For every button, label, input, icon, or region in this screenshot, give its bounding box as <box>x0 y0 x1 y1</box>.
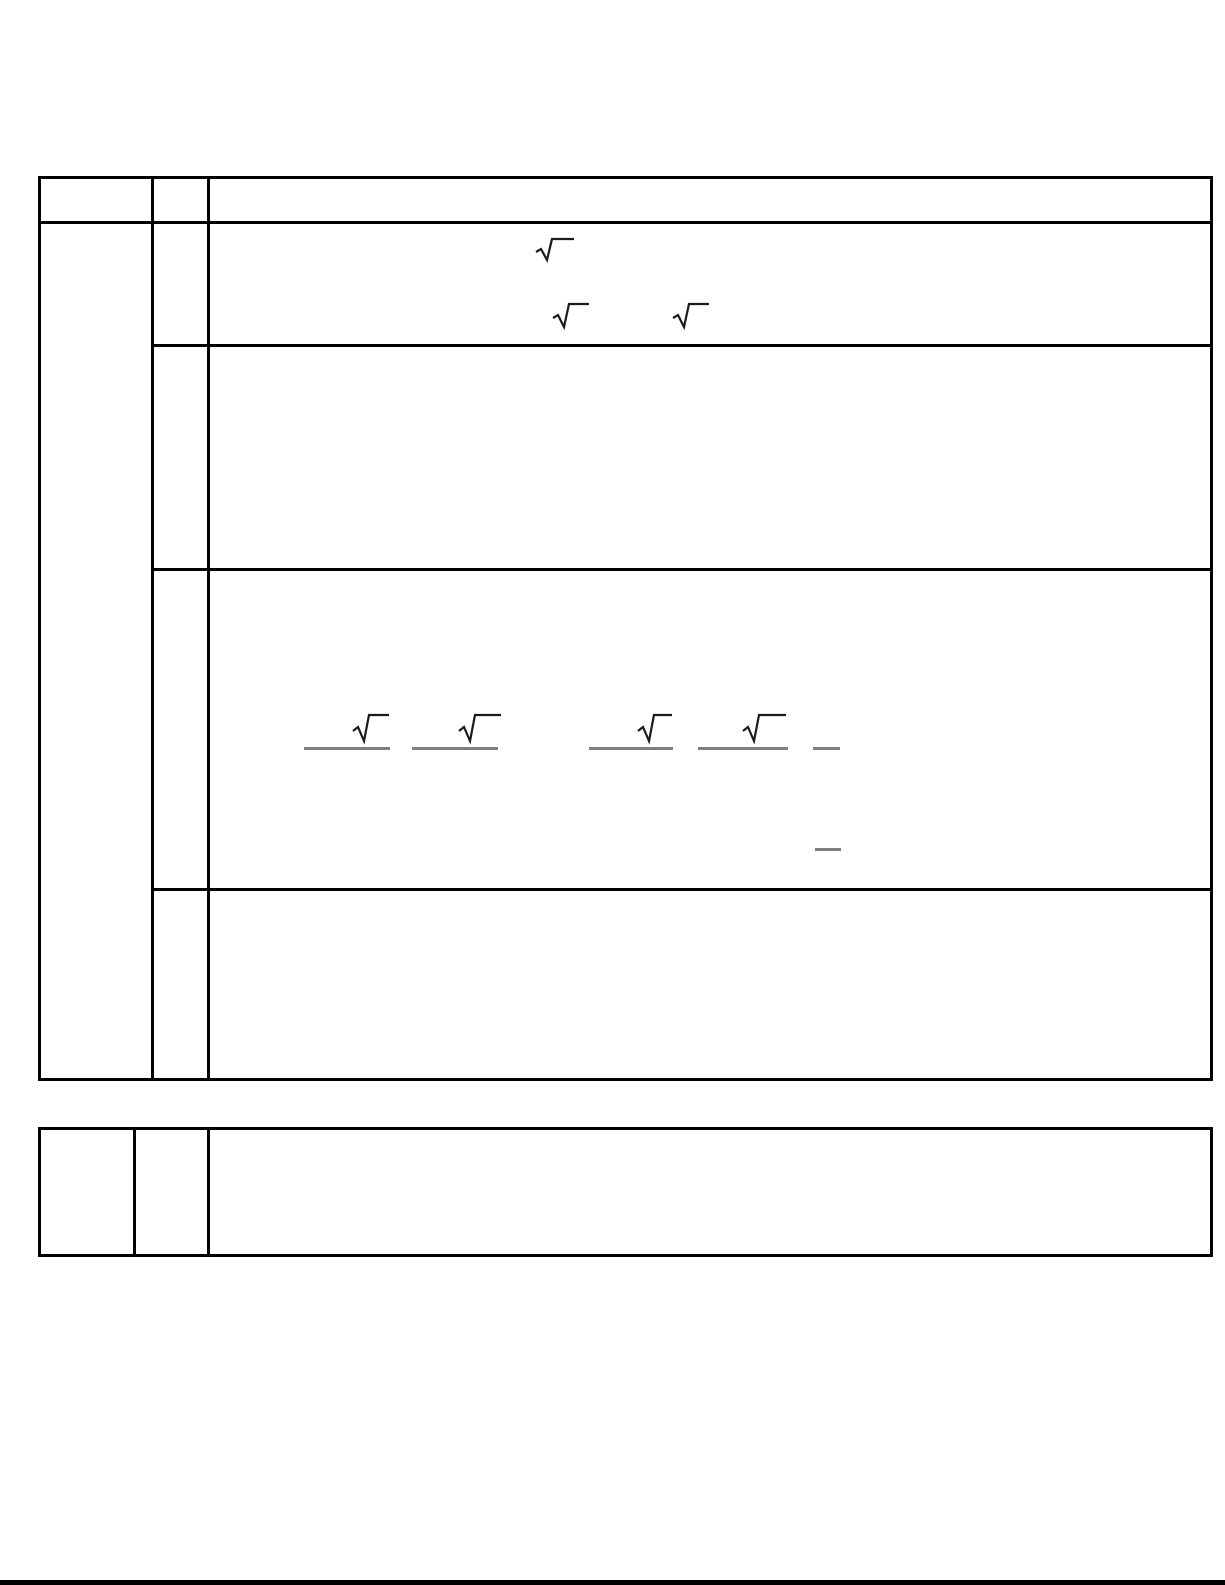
row-3-marker-cell <box>154 571 207 888</box>
answer-blank-short <box>815 848 841 851</box>
header-cell-2 <box>154 179 207 221</box>
answer-blank-short <box>813 747 840 750</box>
radical-sign-icon <box>552 302 590 330</box>
radical-sign-icon <box>672 302 710 330</box>
answer-underline <box>698 747 788 750</box>
secondary-cell-1 <box>41 1130 133 1254</box>
radical-sign-icon <box>352 712 390 745</box>
document-page <box>0 0 1225 1585</box>
row-3-content-cell <box>210 571 1210 888</box>
side-merged-cell <box>41 224 151 1078</box>
row-1-marker-cell <box>154 224 207 344</box>
secondary-cell-2 <box>136 1130 207 1254</box>
header-cell-3 <box>210 179 1210 221</box>
row-1-content-cell <box>210 224 1210 344</box>
answer-underline <box>412 747 498 750</box>
row-2-marker-cell <box>154 347 207 568</box>
answer-underline <box>589 747 673 750</box>
page-bottom-rule <box>0 1580 1225 1585</box>
main-table <box>38 176 1213 1081</box>
row-4-content-cell <box>210 891 1210 1078</box>
row-2-content-cell <box>210 347 1210 568</box>
radical-sign-icon <box>742 712 787 745</box>
secondary-table <box>38 1127 1213 1257</box>
answer-underline <box>304 747 390 750</box>
header-cell-1 <box>41 179 151 221</box>
radical-sign-icon <box>637 712 673 745</box>
radical-sign-icon <box>535 237 575 263</box>
row-4-marker-cell <box>154 891 207 1078</box>
secondary-cell-3 <box>210 1130 1210 1254</box>
radical-sign-icon <box>458 712 502 745</box>
